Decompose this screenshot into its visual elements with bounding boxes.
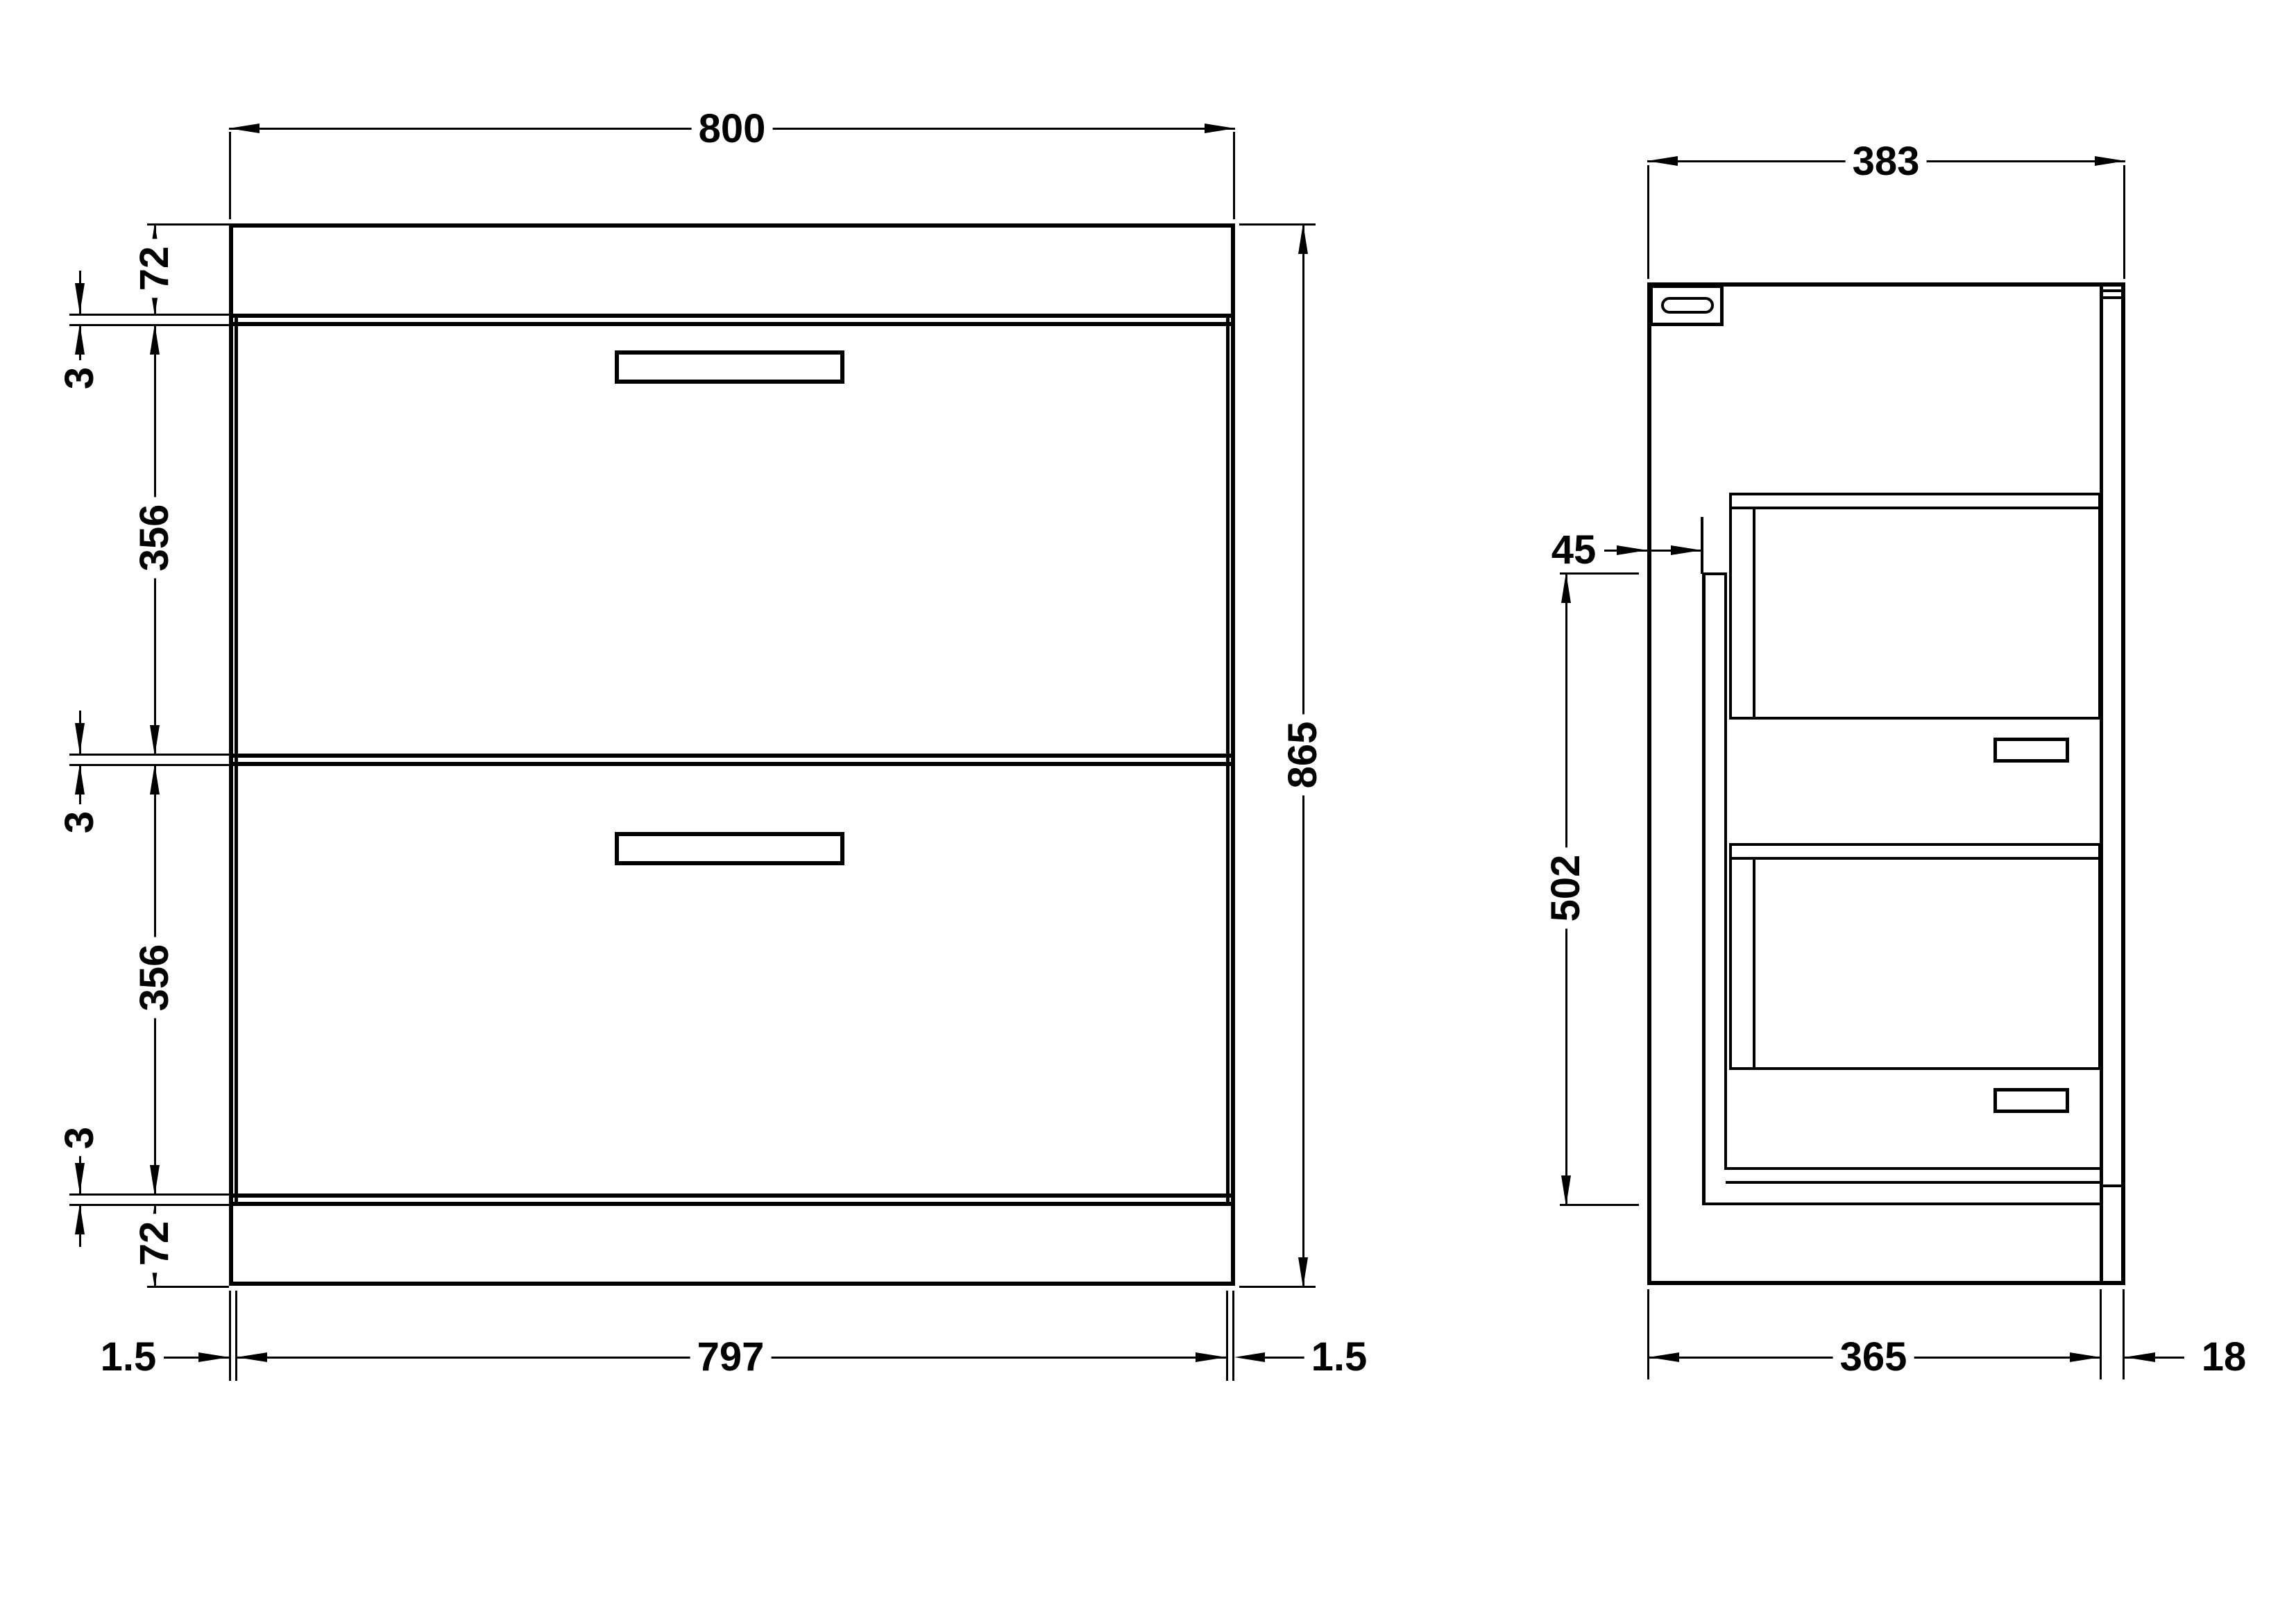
side-back-panel-rear-line (1724, 572, 1727, 1170)
dim-drawer2-height: 356 (133, 937, 176, 1019)
side-drawer1-back-tick (1753, 507, 1755, 717)
side-front-joint-top-1 (2100, 289, 2125, 292)
side-outline (1647, 282, 2125, 1285)
dim-front-panel-thickness: 18 (2195, 1336, 2254, 1379)
side-back-panel-front-line (1702, 572, 1706, 1205)
dim-cabinet-depth: 365 (1833, 1336, 1914, 1379)
side-bottom-panel-top (1726, 1167, 2101, 1170)
side-drawer2-back-tick (1753, 857, 1755, 1067)
dim-back-clearance: 45 (1545, 529, 1604, 572)
side-front-joint-bottom (2100, 1184, 2125, 1187)
front-top-panel-line (229, 314, 1235, 318)
dim-drawer1-height: 356 (133, 498, 176, 579)
side-drawer1-inner-top (1729, 507, 2101, 509)
front-drawer2-bottom-line (229, 1193, 1235, 1198)
dim-gap-1: 3 (58, 360, 101, 396)
side-front-joint-top-2 (2100, 296, 2125, 299)
dim-top-panel-height: 72 (133, 239, 176, 298)
front-plinth-top-line (229, 1202, 1235, 1206)
dim-drawer-front-width: 797 (690, 1336, 772, 1379)
dim-gap-2: 3 (58, 804, 101, 840)
side-drawer2-inner-top (1729, 857, 2101, 860)
front-drawer-right-edge (1226, 314, 1230, 1206)
front-drawer-left-edge (235, 314, 238, 1206)
wall-bracket-slot (1661, 297, 1714, 314)
side-drawer1-slot (1993, 738, 2069, 763)
drawer1-handle (615, 350, 844, 384)
side-floor-line (1702, 1203, 2101, 1205)
side-drawer2-slot (1993, 1088, 2069, 1113)
dim-plinth-height: 72 (133, 1214, 176, 1273)
dim-front-overall-height: 865 (1282, 715, 1325, 796)
dim-front-overall-width: 800 (692, 108, 773, 151)
side-drawer1-box (1729, 493, 2101, 720)
front-drawer1-bottom-line (229, 754, 1235, 758)
side-front-panel-inner-line (2100, 282, 2103, 1285)
dim-back-panel-height: 502 (1545, 848, 1588, 929)
side-back-panel-top-cap (1702, 572, 1727, 575)
front-drawer2-top-line (229, 762, 1235, 766)
front-drawer1-top-line (229, 322, 1235, 326)
side-bottom-panel-bottom (1726, 1181, 2101, 1184)
dim-right-reveal: 1.5 (1304, 1336, 1375, 1379)
dim-side-overall-depth: 383 (1846, 140, 1927, 183)
dim-left-reveal: 1.5 (94, 1336, 164, 1379)
drawer2-handle (615, 832, 844, 865)
technical-drawing: 800 72 356 356 72 3 (0, 0, 2296, 1623)
dim-gap-3: 3 (58, 1120, 101, 1156)
side-drawer2-box (1729, 843, 2101, 1070)
